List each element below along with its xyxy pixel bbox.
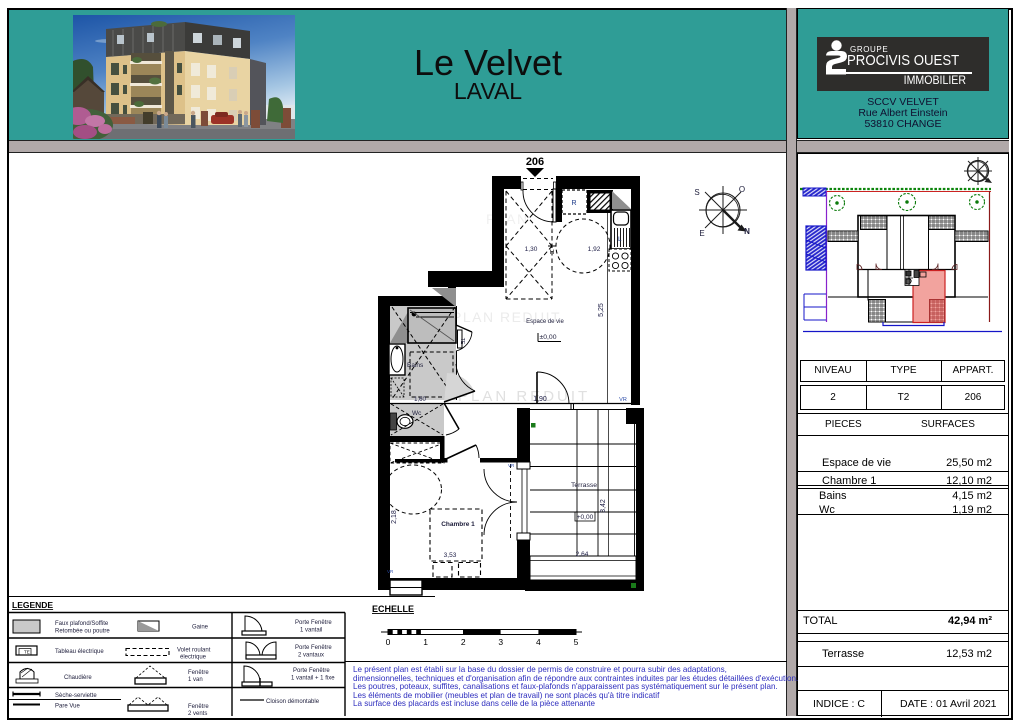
- svg-text:R: R: [571, 200, 576, 207]
- svg-text:206: 206: [526, 156, 544, 168]
- svg-text:Sèche-serviette: Sèche-serviette: [55, 693, 97, 699]
- svg-text:Porte Fenêtre: Porte Fenêtre: [295, 645, 332, 651]
- svg-text:Cloison démontable: Cloison démontable: [266, 699, 320, 705]
- svg-text:Retombée ou poutre: Retombée ou poutre: [55, 629, 110, 635]
- svg-text:1,90: 1,90: [533, 396, 547, 403]
- svg-text:0: 0: [386, 637, 391, 647]
- svg-text:1,92: 1,92: [588, 246, 601, 253]
- svg-text:O: O: [739, 185, 745, 194]
- svg-text:Volet roulant: Volet roulant: [177, 648, 211, 654]
- svg-text:VR: VR: [508, 463, 515, 468]
- svg-text:Chambre 1: Chambre 1: [441, 521, 475, 528]
- svg-text:Espace de vie: Espace de vie: [526, 319, 564, 325]
- svg-text:2 vantaux: 2 vantaux: [298, 653, 324, 659]
- svg-text:1: 1: [423, 637, 428, 647]
- svg-text:1 vantail: 1 vantail: [300, 628, 322, 634]
- svg-text:Faux plafond/Soffite: Faux plafond/Soffite: [55, 621, 109, 627]
- svg-text:Fenêtre: Fenêtre: [188, 704, 209, 710]
- svg-text:2: 2: [461, 637, 466, 647]
- svg-text:TE: TE: [24, 650, 30, 655]
- svg-text:5: 5: [574, 637, 579, 647]
- svg-text:Pare Vue: Pare Vue: [55, 704, 80, 710]
- svg-text:VR: VR: [619, 397, 627, 403]
- svg-text:2 vents: 2 vents: [188, 711, 207, 716]
- svg-text:S: S: [694, 188, 699, 197]
- svg-text:1,30: 1,30: [525, 246, 538, 253]
- svg-text:électrique: électrique: [180, 655, 207, 661]
- svg-text:N: N: [744, 227, 750, 236]
- svg-text:L: L: [618, 236, 622, 243]
- svg-text:ECHELLE: ECHELLE: [372, 604, 414, 614]
- svg-text:LEGENDE: LEGENDE: [12, 600, 53, 610]
- svg-text:2,64: 2,64: [576, 551, 589, 558]
- svg-text:±0,00: ±0,00: [540, 334, 557, 341]
- svg-text:H: H: [550, 250, 554, 256]
- svg-text:Wc: Wc: [412, 410, 422, 417]
- svg-text:Porte Fenêtre: Porte Fenêtre: [295, 620, 332, 626]
- svg-text:Porte Fenêtre: Porte Fenêtre: [293, 668, 330, 674]
- svg-text:3: 3: [498, 637, 503, 647]
- svg-text:3,42: 3,42: [600, 499, 607, 513]
- svg-text:1 vantail + 1 fixe: 1 vantail + 1 fixe: [291, 676, 335, 682]
- svg-text:4: 4: [536, 637, 541, 647]
- svg-text:Gaine: Gaine: [192, 625, 209, 631]
- svg-text:Tableau électrique: Tableau électrique: [55, 649, 104, 655]
- svg-text:VR: VR: [387, 569, 394, 574]
- svg-text:Fenêtre: Fenêtre: [188, 670, 209, 676]
- svg-text:Terrasse: Terrasse: [571, 482, 597, 489]
- svg-text:PLAN REDUIT: PLAN REDUIT: [458, 388, 590, 405]
- svg-text:TE: TE: [459, 338, 465, 345]
- svg-text:1 van: 1 van: [188, 677, 203, 683]
- svg-text:E: E: [699, 229, 704, 238]
- svg-text:Chaudière: Chaudière: [64, 675, 92, 681]
- svg-text:1,60: 1,60: [414, 397, 426, 403]
- svg-text:3,53: 3,53: [444, 552, 457, 559]
- svg-text:2,18: 2,18: [391, 510, 398, 524]
- svg-text:+0,00: +0,00: [577, 514, 594, 521]
- svg-text:5,25: 5,25: [598, 303, 605, 317]
